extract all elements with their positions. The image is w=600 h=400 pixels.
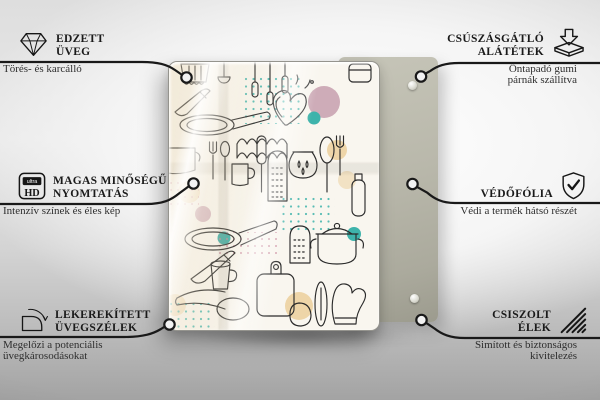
feature-title: CSÚSZÁSGÁTLÓ (447, 33, 544, 46)
hatched-edge-icon (558, 305, 587, 334)
feature-protective-film: VÉDŐFÓLIA Védi a termék hátsó részét (417, 168, 595, 217)
feature-title: ALÁTÉTEK (447, 46, 544, 59)
feature-anti-slip-pads: CSÚSZÁSGÁTLÓ ALÁTÉTEK Öntapadó gumi párn… (417, 26, 595, 85)
feature-description: üvegkárosodásokat (3, 351, 174, 362)
feature-title: CSISZOLT (492, 309, 551, 322)
glass-reflection (169, 62, 379, 330)
shield-check-icon (560, 171, 587, 200)
feature-polished-edges: CSISZOLT ÉLEK Simított és biztonságos ki… (417, 302, 595, 361)
feature-title: MAGAS MINŐSÉGŰ (53, 175, 167, 188)
ultra-hd-icon: ultra HD (18, 172, 46, 200)
feature-title: ÜVEGSZÉLEK (55, 322, 151, 335)
product-feature-infographic: EDZETT ÜVEG Törés- és karcálló ultra HD … (0, 0, 600, 400)
glass-panel (168, 61, 380, 331)
feature-description: Védi a termék hátsó részét (417, 206, 577, 217)
feature-title: EDZETT (56, 33, 104, 46)
feature-title: ÉLEK (492, 322, 551, 335)
ultra-label: ultra (27, 179, 38, 185)
feature-title: VÉDŐFÓLIA (481, 188, 553, 201)
rounded-corner-icon (18, 306, 48, 334)
diamond-icon (18, 31, 49, 58)
arrow-into-pad-icon (551, 28, 587, 58)
feature-description: párnák szállítva (417, 75, 577, 86)
feature-description: kivitelezés (417, 351, 577, 362)
feature-rounded-glass-edges: LEKEREKÍTETT ÜVEGSZÉLEK Megelőzi a poten… (2, 302, 174, 361)
mounting-screw-top (408, 81, 417, 90)
feature-title: ÜVEG (56, 46, 104, 59)
feature-description: Törés- és karcálló (3, 64, 174, 75)
feature-title: LEKEREKÍTETT (55, 309, 151, 322)
feature-title: NYOMTATÁS (53, 188, 167, 201)
feature-description: Intenzív színek és éles kép (3, 206, 174, 217)
hd-label: HD (24, 188, 39, 199)
feature-description: Öntapadó gumi (417, 64, 577, 75)
feature-tempered-glass: EDZETT ÜVEG Törés- és karcálló (2, 26, 174, 75)
feature-high-quality-print: ultra HD MAGAS MINŐSÉGŰ NYOMTATÁS Intenz… (2, 168, 174, 217)
feature-description: Simított és biztonságos (417, 340, 577, 351)
feature-description: Megelőzi a potenciális (3, 340, 174, 351)
